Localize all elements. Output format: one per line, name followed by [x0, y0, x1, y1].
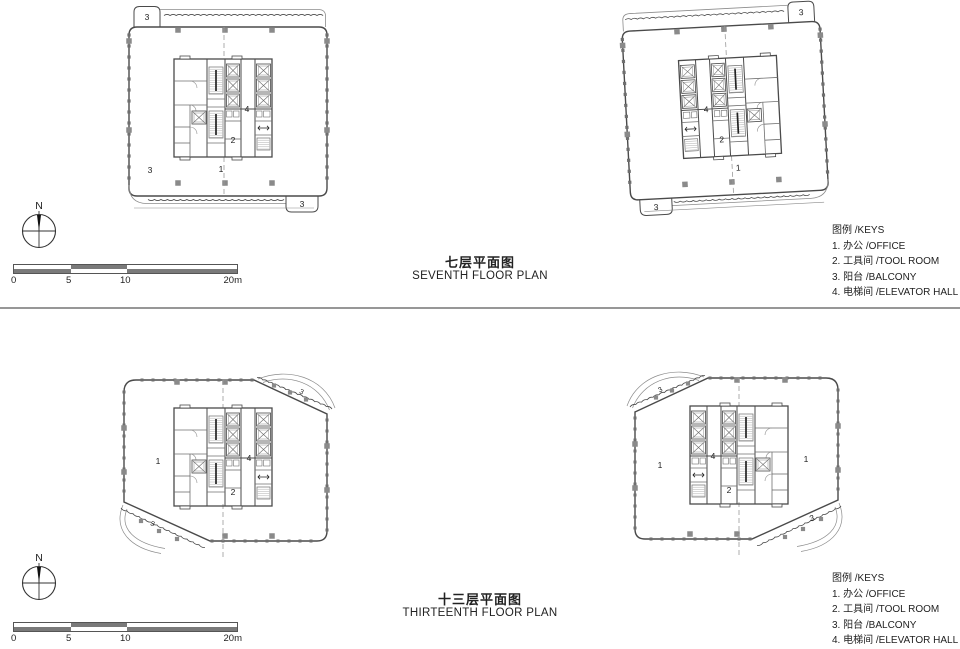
floor-plan-seventh-right: 34213: [612, 0, 847, 219]
room-label: 3: [657, 386, 664, 394]
floor-plan-thirteenth-left: 31423: [112, 368, 346, 560]
legend-item: 4. 电梯间 /ELEVATOR HALL: [832, 285, 960, 301]
legend-title: 图例 /KEYS: [832, 571, 960, 587]
plan-title-en: SEVENTH FLOOR PLAN: [360, 270, 600, 283]
plan-title-zh: 七层平面图: [360, 256, 600, 270]
room-label: 1: [219, 164, 224, 174]
room-label: 2: [719, 134, 725, 144]
room-label: 2: [231, 135, 236, 145]
north-arrow: N: [16, 550, 62, 606]
legend-item: 2. 工具间 /TOOL ROOM: [832, 602, 960, 618]
page-root: { "colors": { "line": "#4a4a4a", "soft":…: [0, 0, 960, 649]
room-label: 2: [231, 487, 236, 497]
scale-bar: 0 5 10 20m: [13, 264, 238, 287]
legend-item: 1. 办公 /OFFICE: [832, 239, 960, 255]
plan-title-seventh: 七层平面图 SEVENTH FLOOR PLAN: [360, 256, 600, 283]
scale-tick: 20m: [224, 633, 242, 644]
north-needle: [37, 567, 41, 583]
room-label: 4: [245, 104, 250, 114]
north-needle: [37, 215, 41, 231]
room-label: 3: [799, 7, 805, 17]
north-label: N: [35, 552, 43, 564]
scale-tick: 5: [66, 275, 71, 286]
scale-bar-labels: 0 5 10 20m: [13, 633, 238, 645]
scale-tick: 0: [11, 633, 16, 644]
room-label: 4: [703, 104, 709, 114]
legend-keys: 图例 /KEYS 1. 办公 /OFFICE 2. 工具间 /TOOL ROOM…: [832, 571, 960, 649]
scale-bar: 0 5 10 20m: [13, 622, 238, 645]
legend-item: 4. 电梯间 /ELEVATOR HALL: [832, 633, 960, 649]
room-label: 1: [736, 162, 742, 172]
scale-tick: 20m: [224, 275, 242, 286]
room-label: 3: [148, 165, 153, 175]
legend-item: 3. 阳台 /BALCONY: [832, 618, 960, 634]
floor-plan-seventh-left: 331423: [112, 2, 336, 214]
scale-bar-graphic: [13, 264, 238, 274]
room-label: 1: [804, 454, 809, 464]
plan-title-zh: 十三层平面图: [360, 593, 600, 607]
room-label: 3: [654, 202, 660, 212]
room-label: 1: [658, 460, 663, 470]
floor-plan-thirteenth-right: 314213: [616, 366, 850, 558]
plan-title-en: THIRTEENTH FLOOR PLAN: [360, 607, 600, 620]
legend-item: 3. 阳台 /BALCONY: [832, 270, 960, 286]
room-label: 3: [145, 12, 150, 22]
scale-tick: 10: [120, 633, 131, 644]
room-label: 1: [156, 456, 161, 466]
room-label: 3: [149, 520, 156, 528]
room-label: 4: [711, 451, 716, 461]
room-label: 2: [727, 485, 732, 495]
scale-tick: 0: [11, 275, 16, 286]
north-label: N: [35, 200, 43, 212]
room-label: 3: [300, 199, 305, 209]
legend-item: 2. 工具间 /TOOL ROOM: [832, 254, 960, 270]
scale-bar-graphic: [13, 622, 238, 632]
legend-keys: 图例 /KEYS 1. 办公 /OFFICE 2. 工具间 /TOOL ROOM…: [832, 223, 960, 301]
scale-bar-labels: 0 5 10 20m: [13, 275, 238, 287]
legend-item: 1. 办公 /OFFICE: [832, 587, 960, 603]
room-label: 4: [247, 453, 252, 463]
legend-title: 图例 /KEYS: [832, 223, 960, 239]
plan-title-thirteenth: 十三层平面图 THIRTEENTH FLOOR PLAN: [360, 593, 600, 620]
north-arrow: N: [16, 198, 62, 254]
section-divider: [0, 307, 960, 309]
scale-tick: 10: [120, 275, 131, 286]
scale-tick: 5: [66, 633, 71, 644]
room-label: 3: [298, 388, 305, 396]
